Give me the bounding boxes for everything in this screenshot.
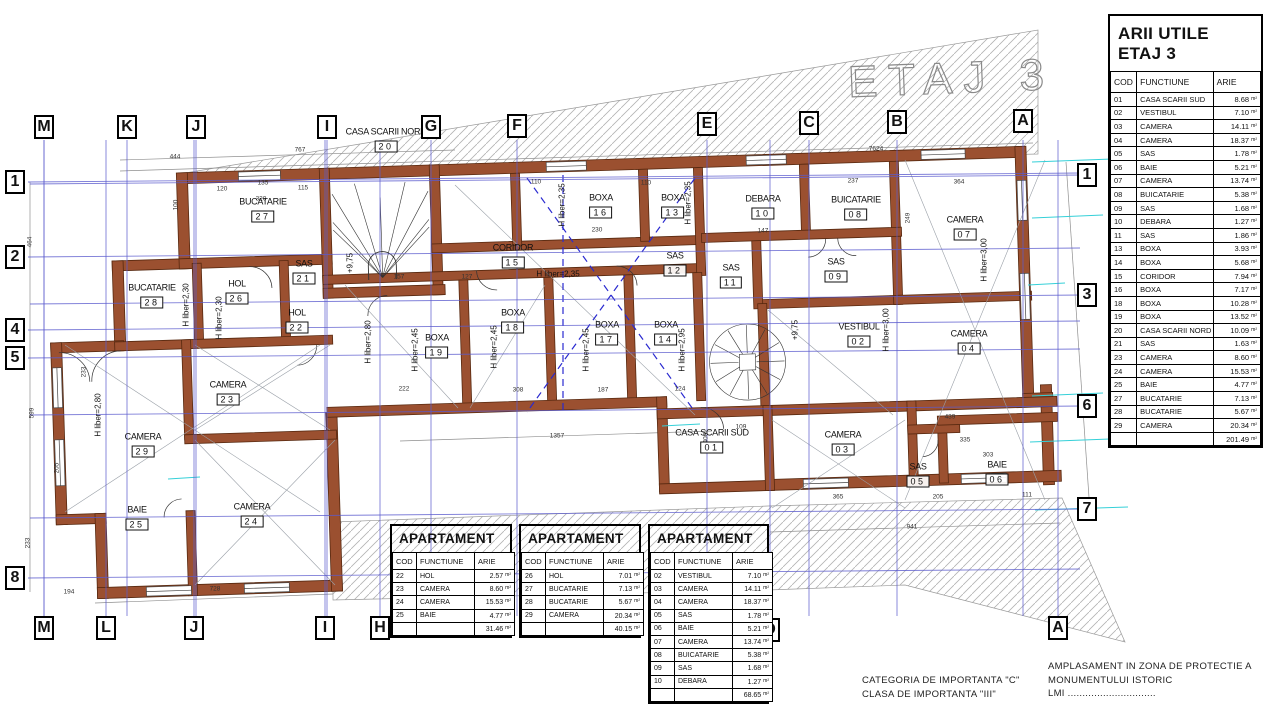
room-code: 01	[700, 442, 723, 454]
cell-arie: 1.78 m²	[733, 609, 773, 622]
room-code: 25	[125, 519, 148, 531]
cell-functiune: CAMERA	[675, 635, 733, 648]
room-label-14: BOXA14	[654, 321, 678, 348]
table-row: 26HOL7.01 m²	[522, 570, 644, 583]
room-code: 16	[589, 207, 612, 219]
room-label-13: BOXA13	[661, 194, 685, 221]
room-code: 28	[140, 297, 163, 309]
height-annotation: H liber=2,30	[182, 283, 191, 326]
cell-arie: 13.74 m²	[733, 635, 773, 648]
cell-empty	[546, 622, 604, 635]
col-header: FUNCTIUNE	[675, 553, 733, 570]
table-total-row: 31.46 m²	[393, 622, 515, 635]
table-row: 25BAIE4.77 m²	[393, 609, 515, 622]
table-row: 16BOXA7.17 m²	[1111, 283, 1261, 297]
cell-functiune: SAS	[675, 662, 733, 675]
cell-arie: 1.78 m²	[1213, 147, 1260, 161]
table-total-row: 40.15 m²	[522, 622, 644, 635]
axis-marker-top-I: I	[317, 115, 337, 139]
axis-marker-bottom-J: J	[184, 616, 204, 640]
axis-marker-bottom-M: M	[34, 616, 54, 640]
height-annotation: H liber=3,00	[980, 238, 989, 281]
cell-functiune: CAMERA	[1137, 174, 1214, 188]
cell-cod: 10	[651, 675, 675, 688]
footer-amplasament: AMPLASAMENT IN ZONA DE PROTECTIE A MONUM…	[1048, 660, 1252, 701]
room-code: 23	[216, 394, 239, 406]
room-name: CAMERA	[825, 431, 862, 440]
cell-functiune: HOL	[546, 570, 604, 583]
cell-arie: 5.38 m²	[733, 649, 773, 662]
dim-label: 135	[258, 180, 269, 187]
room-code: 06	[985, 474, 1008, 486]
table-row: 28BUCATARIE5.67 m²	[1111, 405, 1261, 419]
dim-label: 941	[907, 524, 918, 531]
room-name: CAMERA	[947, 216, 984, 225]
cell-functiune: HOL	[417, 570, 475, 583]
dim-label: 1357	[550, 433, 564, 440]
room-label-23: CAMERA23	[210, 381, 247, 408]
cell-functiune: VESTIBUL	[675, 570, 733, 583]
cell-arie: 13.74 m²	[1213, 174, 1260, 188]
floorplan-sheet: { "watermark": "ETAJ 3", "unit": "m²", "…	[0, 0, 1266, 720]
dim-label: 127	[462, 274, 473, 281]
room-label-19: BOXA19	[425, 334, 449, 361]
amplasament-line3: LMI ..............................	[1048, 687, 1252, 701]
cell-cod: 09	[1111, 201, 1137, 215]
room-name: BOXA	[661, 194, 685, 203]
height-annotation: H liber=2,35	[536, 270, 579, 279]
axis-marker-bottom-H: H	[370, 616, 390, 640]
room-code: 10	[751, 208, 774, 220]
cell-functiune: CASA SCARII SUD	[1137, 93, 1214, 107]
cell-cod: 10	[1111, 215, 1137, 229]
cell-arie: 2.57 m²	[475, 570, 515, 583]
dim-label: 335	[960, 437, 971, 444]
room-name: BOXA	[654, 321, 678, 330]
room-name: VESTIBUL	[838, 323, 879, 332]
axis-marker-top-F: F	[507, 114, 527, 138]
col-header: ARIE	[604, 553, 644, 570]
room-label-21: SAS21	[292, 260, 315, 287]
room-code: 18	[501, 322, 524, 334]
axis-marker-left-4: 4	[5, 318, 25, 342]
amplasament-line1: AMPLASAMENT IN ZONA DE PROTECTIE A	[1048, 660, 1252, 674]
room-name: BOXA	[425, 334, 449, 343]
room-name: SAS	[292, 260, 315, 269]
room-code: 17	[595, 334, 618, 346]
height-annotation: H liber=2,30	[215, 296, 224, 339]
room-name: BOXA	[501, 309, 525, 318]
room-label-20: CASA SCARII NORD20	[346, 128, 427, 155]
col-header: FUNCTIUNE	[546, 553, 604, 570]
cell-arie: 14.11 m²	[1213, 120, 1260, 134]
cell-arie: 3.93 m²	[1213, 242, 1260, 256]
axis-marker-bottom-I: I	[315, 616, 335, 640]
dim-label: 124	[675, 386, 686, 393]
cell-arie: 18.37 m²	[1213, 133, 1260, 147]
room-label-18: BOXA18	[501, 309, 525, 336]
table-row: 25BAIE4.77 m²	[1111, 378, 1261, 392]
cell-total: 40.15 m²	[604, 622, 644, 635]
col-header-arie: ARIE	[1213, 72, 1260, 93]
cell-arie: 20.34 m²	[604, 609, 644, 622]
cell-arie: 7.10 m²	[733, 570, 773, 583]
dim-label: 115	[298, 185, 308, 192]
cell-functiune: SAS	[1137, 147, 1214, 161]
floor-watermark: ETAJ 3	[847, 50, 1056, 108]
apartment-table-title: APARTAMENTNORD 1	[392, 526, 510, 552]
room-name: SAS	[824, 258, 847, 267]
cell-arie: 7.10 m²	[1213, 106, 1260, 120]
cell-arie: 20.34 m²	[1213, 419, 1260, 433]
cell-arie: 1.27 m²	[1213, 215, 1260, 229]
cell-cod: 15	[1111, 269, 1137, 283]
cell-arie: 5.38 m²	[1213, 188, 1260, 202]
apartment-table-title: APARTAMENTNORD 2	[521, 526, 639, 552]
cell-cod: 22	[393, 570, 417, 583]
cell-cod: 14	[1111, 256, 1137, 270]
cell-arie: 1.86 m²	[1213, 228, 1260, 242]
dim-label: 464	[27, 237, 34, 248]
dim-label: 308	[513, 387, 524, 394]
axis-marker-top-E: E	[697, 112, 717, 136]
cell-cod: 18	[1111, 296, 1137, 310]
axis-marker-left-2: 2	[5, 245, 25, 269]
table-row: 13BOXA3.93 m²	[1111, 242, 1261, 256]
room-name: SAS	[906, 463, 929, 472]
cell-cod: 01	[1111, 93, 1137, 107]
cell-arie: 7.13 m²	[1213, 392, 1260, 406]
cell-functiune: BUCATARIE	[1137, 392, 1214, 406]
axis-marker-top-A: A	[1013, 109, 1033, 133]
cell-cod: 25	[393, 609, 417, 622]
cell-functiune: CAMERA	[1137, 364, 1214, 378]
cell-arie: 7.17 m²	[1213, 283, 1260, 297]
apartment-table-grid: CODFUNCTIUNEARIE22HOL2.57 m²23CAMERA8.60…	[392, 552, 515, 636]
cell-functiune: BOXA	[1137, 256, 1214, 270]
axis-marker-left-1: 1	[5, 170, 25, 194]
axis-marker-top-J: J	[186, 115, 206, 139]
cell-cod: 09	[651, 662, 675, 675]
table-row: 08BUICATARIE5.38 m²	[1111, 188, 1261, 202]
axis-marker-right-7: 7	[1077, 497, 1097, 521]
dim-label: 110	[531, 179, 541, 186]
cell-cod: 29	[522, 609, 546, 622]
axis-marker-left-5: 5	[5, 346, 25, 370]
cell-cod: 29	[1111, 419, 1137, 433]
col-header-cod: COD	[1111, 72, 1137, 93]
cell-cod: 05	[651, 609, 675, 622]
table-row: 04CAMERA18.37 m²	[1111, 133, 1261, 147]
axis-marker-bottom-A: A	[1048, 616, 1068, 640]
room-label-24: CAMERA24	[234, 503, 271, 530]
room-label-27: BUCATARIE27	[239, 198, 286, 225]
table-row: 28BUCATARIE5.67 m²	[522, 596, 644, 609]
cell-arie: 13.52 m²	[1213, 310, 1260, 324]
cell-functiune: BAIE	[417, 609, 475, 622]
dim-label: 7624	[869, 146, 883, 153]
room-label-04: CAMERA04	[951, 330, 988, 357]
room-label-08: BUICATARIE08	[831, 196, 881, 223]
cell-empty	[1137, 432, 1214, 446]
cell-functiune: CAMERA	[1137, 133, 1214, 147]
room-name: BAIE	[125, 506, 148, 515]
height-annotation: H liber=2,95	[678, 328, 687, 371]
room-name: BUICATARIE	[831, 196, 881, 205]
dim-label: 444	[170, 154, 181, 161]
arii-utile-table: ARII UTILEETAJ 3 COD FUNCTIUNE ARIE 01CA…	[1108, 14, 1263, 448]
cell-arie: 5.68 m²	[1213, 256, 1260, 270]
dim-label: 728	[210, 586, 221, 593]
room-code: 15	[501, 257, 524, 269]
axis-marker-top-G: G	[421, 115, 441, 139]
room-name: CAMERA	[234, 503, 271, 512]
apartment-table-title: APARTAMENTSUD	[650, 526, 767, 552]
room-label-15: CORIDOR15	[493, 244, 533, 271]
cell-arie: 15.53 m²	[1213, 364, 1260, 378]
cell-functiune: BOXA	[1137, 296, 1214, 310]
table-row: 07CAMERA13.74 m²	[1111, 174, 1261, 188]
axis-marker-top-C: C	[799, 111, 819, 135]
table-row: 08BUICATARIE5.38 m²	[651, 649, 773, 662]
cell-arie: 7.01 m²	[604, 570, 644, 583]
room-code: 09	[824, 271, 847, 283]
cell-functiune: BUICATARIE	[1137, 188, 1214, 202]
apartment-table-3: APARTAMENTSUDCODFUNCTIUNEARIE02VESTIBUL7…	[648, 524, 769, 704]
cell-arie: 5.67 m²	[1213, 405, 1260, 419]
dim-label: 233	[25, 538, 32, 549]
table-row: 14BOXA5.68 m²	[1111, 256, 1261, 270]
cell-cod: 28	[522, 596, 546, 609]
table-total-row: 201.49 m²	[1111, 432, 1261, 446]
cell-cod: 04	[1111, 133, 1137, 147]
cell-empty	[393, 622, 417, 635]
cell-functiune: CORIDOR	[1137, 269, 1214, 283]
arii-table-title: ARII UTILEETAJ 3	[1110, 16, 1261, 71]
room-label-09: SAS09	[824, 258, 847, 285]
room-label-07: CAMERA07	[947, 216, 984, 243]
cell-arie: 8.60 m²	[1213, 351, 1260, 365]
cell-cod: 19	[1111, 310, 1137, 324]
room-label-26: HOL26	[225, 280, 248, 307]
cell-cod: 26	[522, 570, 546, 583]
height-annotation: H liber=2,45	[582, 328, 591, 371]
table-row: 15CORIDOR7.94 m²	[1111, 269, 1261, 283]
cell-functiune: SAS	[1137, 337, 1214, 351]
height-annotation: H liber=2,45	[411, 328, 420, 371]
room-code: 12	[663, 265, 686, 277]
dim-label: 365	[833, 494, 844, 501]
cell-functiune: CAMERA	[417, 596, 475, 609]
table-row: 06BAIE5.21 m²	[651, 622, 773, 635]
room-code: 22	[285, 322, 308, 334]
room-label-11: SAS11	[720, 264, 742, 291]
south-spiral-stair	[708, 323, 786, 401]
apartment-table-1: APARTAMENTNORD 1CODFUNCTIUNEARIE22HOL2.5…	[390, 524, 512, 638]
room-name: CASA SCARII SUD	[675, 429, 749, 438]
cell-functiune: BAIE	[675, 622, 733, 635]
room-code: 11	[720, 277, 742, 289]
cell-total: 31.46 m²	[475, 622, 515, 635]
axis-marker-top-M: M	[34, 115, 54, 139]
cell-functiune: CAMERA	[675, 583, 733, 596]
cell-arie: 1.68 m²	[733, 662, 773, 675]
cell-cod: 02	[1111, 106, 1137, 120]
cell-functiune: BOXA	[1137, 310, 1214, 324]
dim-label: 100	[173, 200, 180, 211]
cell-cod: 28	[1111, 405, 1137, 419]
cell-arie: 1.68 m²	[1213, 201, 1260, 215]
cell-arie: 5.21 m²	[1213, 160, 1260, 174]
cell-total: 201.49 m²	[1213, 432, 1260, 446]
cell-arie: 15.53 m²	[475, 596, 515, 609]
table-row: 29CAMERA20.34 m²	[522, 609, 644, 622]
table-row: 10DEBARA1.27 m²	[1111, 215, 1261, 229]
table-row: 02VESTIBUL7.10 m²	[1111, 106, 1261, 120]
room-label-02: VESTIBUL02	[838, 323, 879, 350]
room-label-22: HOL22	[285, 309, 308, 336]
table-row: 23CAMERA8.60 m²	[393, 583, 515, 596]
table-row: 19BOXA13.52 m²	[1111, 310, 1261, 324]
dim-label: 187	[598, 387, 609, 394]
cell-functiune: BOXA	[1137, 283, 1214, 297]
cell-functiune: CAMERA	[1137, 120, 1214, 134]
cell-arie: 7.94 m²	[1213, 269, 1260, 283]
axis-marker-right-3: 3	[1077, 283, 1097, 307]
room-label-28: BUCATARIE28	[128, 284, 175, 311]
table-row: 27BUCATARIE7.13 m²	[522, 583, 644, 596]
room-code: 14	[654, 334, 677, 346]
room-name: CAMERA	[210, 381, 247, 390]
axis-marker-bottom-L: L	[96, 616, 116, 640]
cell-cod: 24	[393, 596, 417, 609]
cell-empty	[675, 688, 733, 701]
room-code: 02	[847, 336, 870, 348]
cell-total: 68.65 m²	[733, 688, 773, 701]
amplasament-line2: MONUMENTULUI ISTORIC	[1048, 674, 1252, 688]
cell-functiune: BUCATARIE	[546, 596, 604, 609]
room-code: 08	[844, 209, 867, 221]
room-label-01: CASA SCARII SUD01	[675, 429, 749, 456]
room-code: 26	[225, 293, 248, 305]
room-label-12: SAS12	[663, 252, 686, 279]
room-label-25: BAIE25	[125, 506, 148, 533]
cell-cod: 21	[1111, 337, 1137, 351]
table-row: 29CAMERA20.34 m²	[1111, 419, 1261, 433]
cell-cod: 20	[1111, 324, 1137, 338]
dim-label: 147	[758, 228, 769, 235]
table-row: 01CASA SCARII SUD8.68 m²	[1111, 93, 1261, 107]
table-row: 09SAS1.68 m²	[1111, 201, 1261, 215]
dim-label: 599	[29, 408, 36, 419]
table-row: 23CAMERA8.60 m²	[1111, 351, 1261, 365]
room-label-06: BAIE06	[985, 461, 1008, 488]
room-name: CASA SCARII NORD	[346, 128, 427, 137]
dim-label: 194	[64, 589, 75, 596]
cell-cod: 07	[651, 635, 675, 648]
table-row: 10DEBARA1.27 m²	[651, 675, 773, 688]
clasa-line: CLASA DE IMPORTANTA "III"	[862, 688, 1020, 702]
cell-arie: 1.63 m²	[1213, 337, 1260, 351]
dim-label: 364	[954, 179, 965, 186]
table-row: 27BUCATARIE7.13 m²	[1111, 392, 1261, 406]
room-name: DEBARA	[745, 195, 780, 204]
room-label-03: CAMERA03	[825, 431, 862, 458]
dim-label: 230	[592, 227, 603, 234]
footer-categoria: CATEGORIA DE IMPORTANTA "C" CLASA DE IMP…	[862, 674, 1020, 701]
cell-arie: 4.77 m²	[475, 609, 515, 622]
dim-label: 767	[295, 147, 306, 154]
table-row: 07CAMERA13.74 m²	[651, 635, 773, 648]
room-label-05: SAS05	[906, 463, 929, 490]
cell-cod: 25	[1111, 378, 1137, 392]
apartment-table-2: APARTAMENTNORD 2CODFUNCTIUNEARIE26HOL7.0…	[519, 524, 641, 638]
cell-functiune: CAMERA	[546, 609, 604, 622]
room-name: CAMERA	[951, 330, 988, 339]
cell-cod: 05	[1111, 147, 1137, 161]
cell-arie: 7.13 m²	[604, 583, 644, 596]
table-row: 20CASA SCARII NORD10.09 m²	[1111, 324, 1261, 338]
col-header: COD	[522, 553, 546, 570]
cell-functiune: CASA SCARII NORD	[1137, 324, 1214, 338]
dim-label: 111	[1022, 492, 1032, 499]
table-row: 03CAMERA14.11 m²	[1111, 120, 1261, 134]
dim-label: 120	[217, 186, 228, 193]
cell-functiune: DEBARA	[675, 675, 733, 688]
table-row: 11SAS1.86 m²	[1111, 228, 1261, 242]
axis-marker-top-K: K	[117, 115, 137, 139]
cell-empty	[417, 622, 475, 635]
room-name: HOL	[225, 280, 248, 289]
room-label-16: BOXA16	[589, 194, 613, 221]
dim-label: 205	[933, 494, 944, 501]
cell-cod: 03	[651, 583, 675, 596]
apartment-table-grid: CODFUNCTIUNEARIE02VESTIBUL7.10 m²03CAMER…	[650, 552, 773, 702]
cell-arie: 8.60 m²	[475, 583, 515, 596]
room-name: BAIE	[985, 461, 1008, 470]
cell-arie: 4.77 m²	[1213, 378, 1260, 392]
cell-cod: 13	[1111, 242, 1137, 256]
table-row: 05SAS1.78 m²	[1111, 147, 1261, 161]
dim-label: 439	[945, 414, 956, 421]
room-label-10: DEBARA10	[745, 195, 780, 222]
cell-cod: 06	[1111, 160, 1137, 174]
height-annotation: H liber=2,80	[94, 393, 103, 436]
cell-cod: 02	[651, 570, 675, 583]
dim-label: 157	[394, 274, 405, 281]
cell-arie: 8.68 m²	[1213, 93, 1260, 107]
cell-arie: 18.37 m²	[733, 596, 773, 609]
cell-empty	[651, 688, 675, 701]
height-annotation: H liber=2,80	[364, 320, 373, 363]
dim-label: 110	[641, 180, 651, 187]
table-total-row: 68.65 m²	[651, 688, 773, 701]
dim-label: 205	[54, 463, 61, 474]
cell-cod: 23	[1111, 351, 1137, 365]
cell-empty	[522, 622, 546, 635]
col-header: COD	[651, 553, 675, 570]
cell-functiune: CAMERA	[417, 583, 475, 596]
axis-marker-left-8: 8	[5, 566, 25, 590]
room-name: BUCATARIE	[239, 198, 286, 207]
room-code: 24	[240, 516, 263, 528]
room-label-29: CAMERA29	[125, 433, 162, 460]
room-name: SAS	[663, 252, 686, 261]
cell-cod: 24	[1111, 364, 1137, 378]
cell-functiune: BUICATARIE	[675, 649, 733, 662]
dim-label: 249	[905, 213, 912, 224]
cell-functiune: CAMERA	[675, 596, 733, 609]
